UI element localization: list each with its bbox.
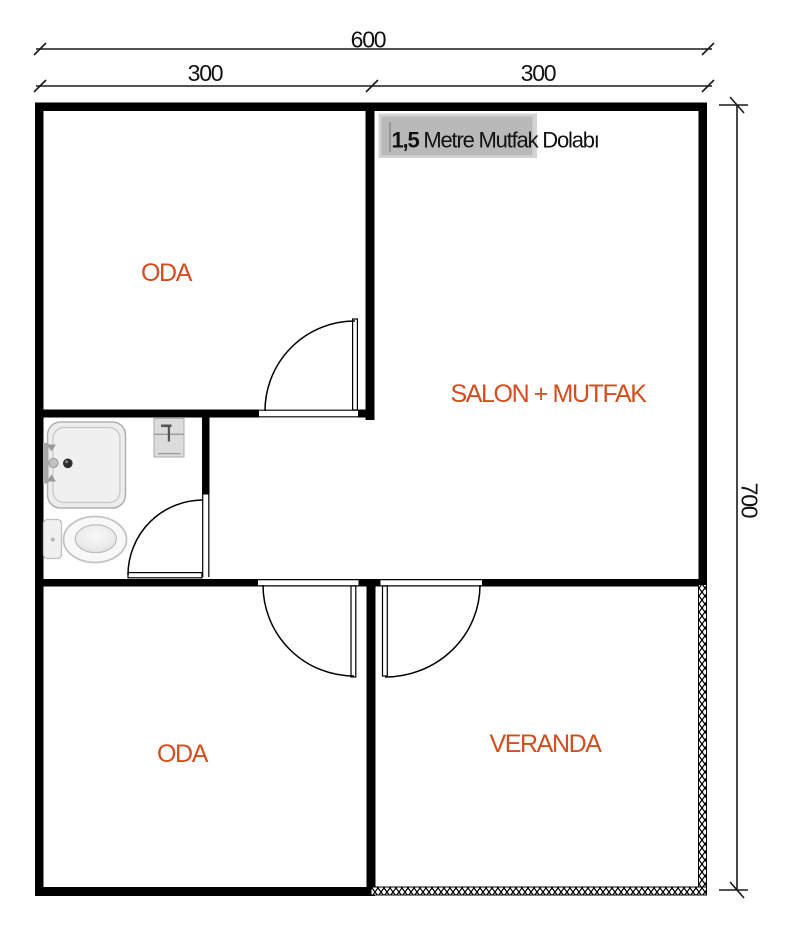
- svg-text:1,5 Metre Mutfak Dolabı: 1,5 Metre Mutfak Dolabı: [392, 128, 599, 153]
- svg-text:VERANDA: VERANDA: [489, 730, 602, 758]
- svg-text:300: 300: [188, 60, 223, 86]
- svg-text:SALON + MUTFAK: SALON + MUTFAK: [450, 380, 647, 408]
- svg-text:300: 300: [521, 60, 556, 86]
- svg-text:ODA: ODA: [157, 740, 209, 768]
- svg-text:600: 600: [351, 27, 386, 53]
- svg-text:700: 700: [737, 483, 763, 518]
- svg-text:ODA: ODA: [141, 259, 193, 287]
